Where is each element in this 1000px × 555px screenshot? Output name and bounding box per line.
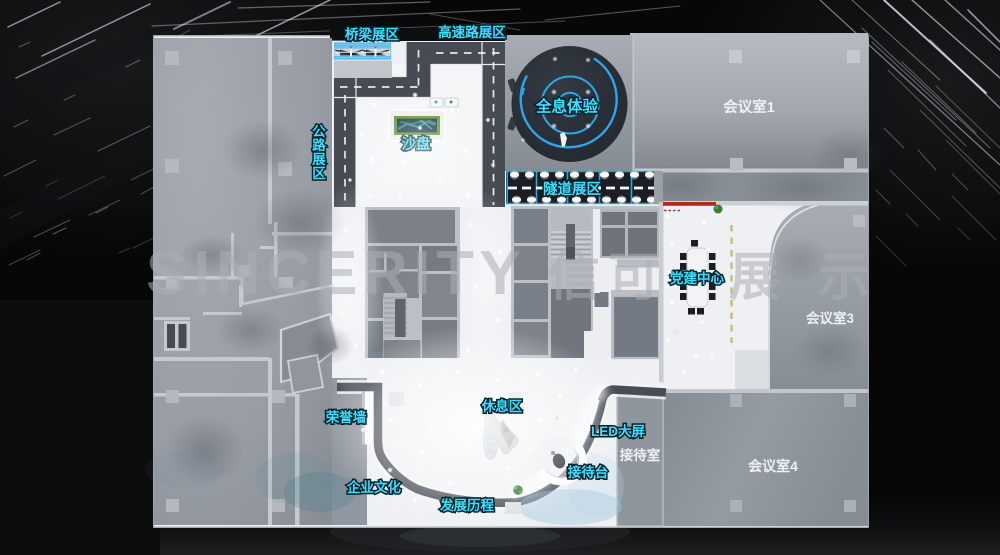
svg-text:路: 路 <box>312 137 326 153</box>
svg-text:SINCERITY: SINCERITY <box>146 239 526 308</box>
svg-text:展: 展 <box>729 249 781 307</box>
svg-text:桥梁展区: 桥梁展区 <box>345 26 399 42</box>
svg-text:示: 示 <box>818 249 870 307</box>
svg-text:党建中心: 党建中心 <box>670 270 724 286</box>
svg-text:展: 展 <box>312 152 326 167</box>
svg-text:接待台: 接待台 <box>568 464 609 480</box>
svg-text:信可: 信可 <box>548 249 668 307</box>
svg-text:LED大屏: LED大屏 <box>591 423 646 439</box>
svg-text:接待室: 接待室 <box>620 447 661 463</box>
svg-text:休息区: 休息区 <box>481 398 523 414</box>
svg-text:全息体验: 全息体验 <box>535 97 599 116</box>
svg-text:会议室4: 会议室4 <box>748 458 798 474</box>
svg-text:公: 公 <box>312 124 326 139</box>
svg-text:高速路展区: 高速路展区 <box>438 24 506 40</box>
svg-text:隧道展区: 隧道展区 <box>543 180 601 198</box>
svg-text:会议室1: 会议室1 <box>723 98 775 116</box>
svg-text:区: 区 <box>312 166 326 181</box>
svg-text:发展历程: 发展历程 <box>439 497 494 513</box>
svg-text:荣誉墙: 荣誉墙 <box>325 409 367 425</box>
svg-text:企业文化: 企业文化 <box>346 479 401 495</box>
svg-text:会议室3: 会议室3 <box>806 310 854 326</box>
